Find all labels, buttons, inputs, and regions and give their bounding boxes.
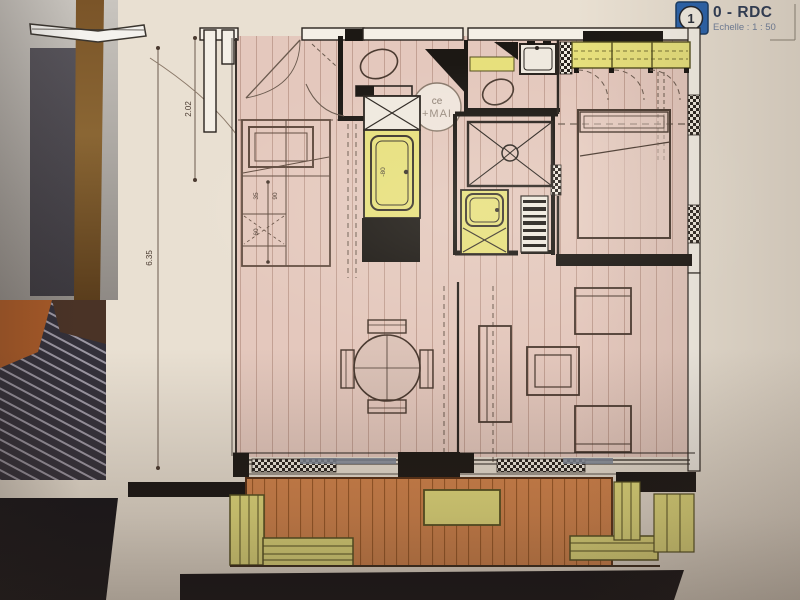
column-label-line2: +MAI: [422, 108, 452, 120]
appliance-label: -80: [380, 167, 387, 177]
appliance-handle: [404, 170, 408, 174]
sheet-title: 0 - RDC: [713, 4, 772, 21]
planter-far-right: [654, 494, 694, 552]
dim-left-upper: 2.02: [184, 101, 193, 117]
floor-plan-photo: 1 0 - RDC Echelle : 1 : 50 6.35 2.02: [0, 0, 800, 600]
dim-kitchen-3: 60: [253, 228, 260, 236]
photo-strip-left: [0, 0, 146, 600]
black-photo-block-left: [0, 498, 118, 600]
plan-sheet: 1 0 - RDC Echelle : 1 : 50 6.35 2.02: [0, 0, 800, 600]
dim-kitchen-2: 90: [272, 192, 279, 200]
radiator: [521, 196, 548, 252]
dimension-lines: [150, 36, 236, 470]
black-photo-block-bottom: [180, 570, 684, 600]
terrace: [128, 472, 696, 566]
bench-terrace-left: [263, 538, 353, 566]
interior-photo-panel: [30, 48, 76, 296]
badge-number: 1: [687, 11, 694, 26]
dim-left-total: 6.35: [145, 250, 154, 266]
glazing-bar: [300, 458, 396, 464]
column-label-line1: ce: [432, 96, 443, 107]
planter-strip-right: [614, 482, 640, 540]
wardrobe: [572, 42, 690, 68]
planter-left: [230, 495, 264, 565]
dim-kitchen-1: 35: [253, 192, 260, 200]
wall-block: [362, 218, 420, 262]
planter-center: [424, 490, 500, 525]
glazing-bar-2: [563, 458, 613, 464]
bedroom-wall: [556, 254, 692, 266]
bed: [578, 110, 670, 238]
wood-post-photo: [74, 0, 104, 300]
scale-label: Echelle : 1 : 50: [713, 22, 776, 33]
